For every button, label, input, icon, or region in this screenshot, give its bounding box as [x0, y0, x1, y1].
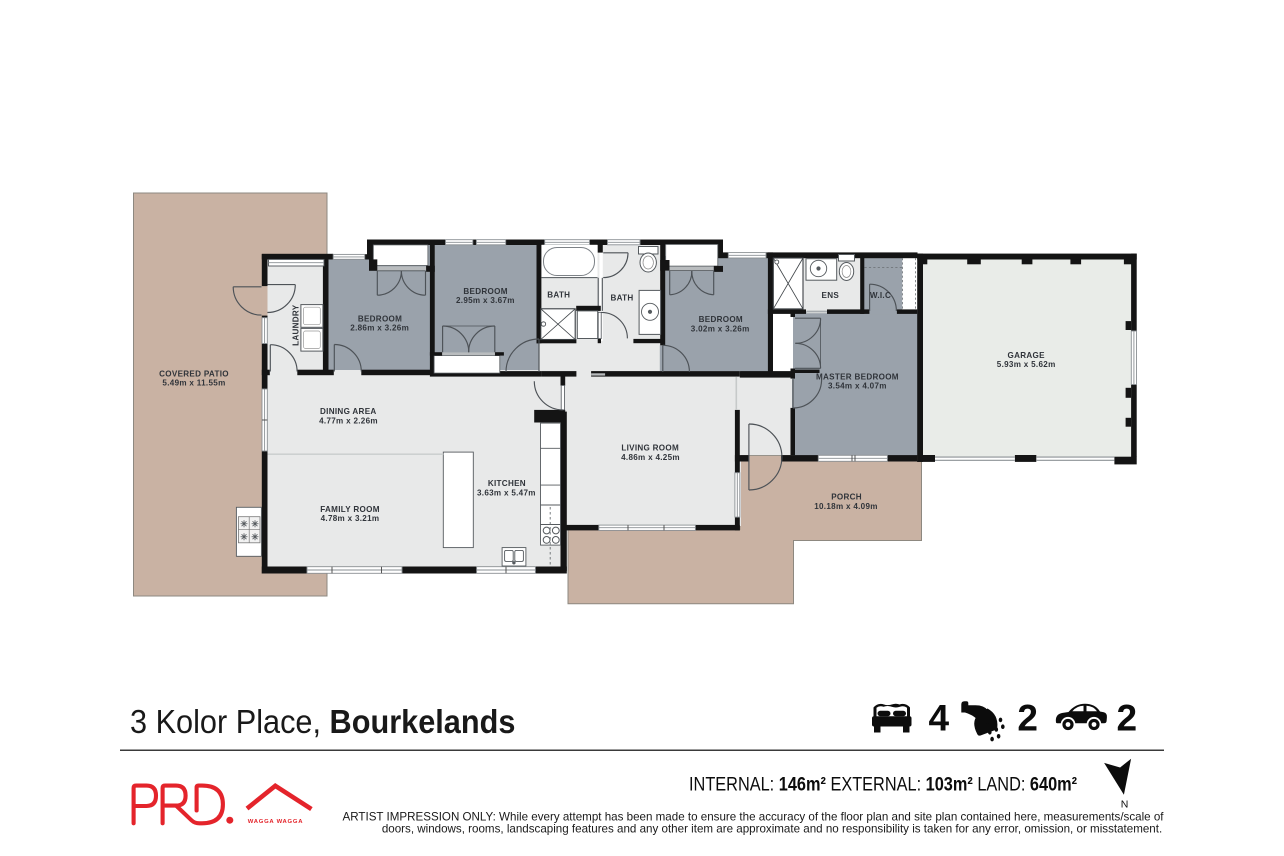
svg-text:KITCHEN: KITCHEN — [488, 479, 526, 488]
svg-text:✳: ✳ — [251, 519, 259, 529]
svg-text:WAGGA WAGGA: WAGGA WAGGA — [248, 819, 303, 825]
svg-text:MASTER BEDROOM: MASTER BEDROOM — [816, 373, 899, 382]
svg-text:2.95m x 3.67m: 2.95m x 3.67m — [456, 296, 515, 305]
svg-text:5.49m x 11.55m: 5.49m x 11.55m — [162, 379, 225, 388]
svg-text:N: N — [1121, 799, 1129, 811]
svg-text:2: 2 — [1017, 698, 1038, 739]
svg-text:INTERNAL: 146m² EXTERNAL: 103m: INTERNAL: 146m² EXTERNAL: 103m² LAND: 64… — [689, 773, 1077, 794]
svg-text:BATH: BATH — [610, 294, 633, 303]
svg-text:✳: ✳ — [240, 519, 248, 529]
svg-text:COVERED PATIO: COVERED PATIO — [159, 369, 229, 378]
svg-text:GARAGE: GARAGE — [1008, 351, 1046, 360]
svg-text:PORCH: PORCH — [831, 493, 862, 502]
svg-text:doors, windows, rooms, landsca: doors, windows, rooms, landscaping featu… — [382, 823, 1162, 836]
svg-text:3.02m x 3.26m: 3.02m x 3.26m — [691, 324, 750, 333]
svg-text:BEDROOM: BEDROOM — [463, 287, 507, 296]
svg-text:10.18m x 4.09m: 10.18m x 4.09m — [814, 502, 878, 511]
svg-text:4.78m x 3.21m: 4.78m x 3.21m — [321, 514, 380, 523]
svg-text:BEDROOM: BEDROOM — [358, 314, 402, 323]
svg-text:ENS: ENS — [822, 291, 840, 300]
svg-text:4.77m x 2.26m: 4.77m x 2.26m — [319, 417, 378, 426]
svg-text:LAUNDRY: LAUNDRY — [292, 304, 301, 346]
svg-text:4: 4 — [929, 698, 950, 739]
svg-text:DINING AREA: DINING AREA — [320, 407, 377, 416]
svg-text:LIVING ROOM: LIVING ROOM — [621, 444, 679, 453]
svg-text:BATH: BATH — [547, 290, 570, 299]
svg-text:3 Kolor Place, Bourkelands: 3 Kolor Place, Bourkelands — [130, 703, 515, 740]
svg-text:BEDROOM: BEDROOM — [699, 315, 743, 324]
svg-text:✳: ✳ — [240, 532, 248, 542]
svg-text:2.86m x 3.26m: 2.86m x 3.26m — [350, 323, 409, 332]
svg-text:3.63m x 5.47m: 3.63m x 5.47m — [477, 489, 536, 498]
svg-text:✳: ✳ — [251, 532, 259, 542]
svg-text:5.93m x 5.62m: 5.93m x 5.62m — [997, 360, 1056, 369]
svg-text:W.I.C: W.I.C — [870, 291, 891, 300]
svg-text:4.86m x 4.25m: 4.86m x 4.25m — [621, 453, 680, 462]
svg-text:2: 2 — [1117, 698, 1138, 739]
svg-text:3.54m x 4.07m: 3.54m x 4.07m — [828, 382, 887, 391]
svg-text:FAMILY ROOM: FAMILY ROOM — [320, 505, 380, 514]
